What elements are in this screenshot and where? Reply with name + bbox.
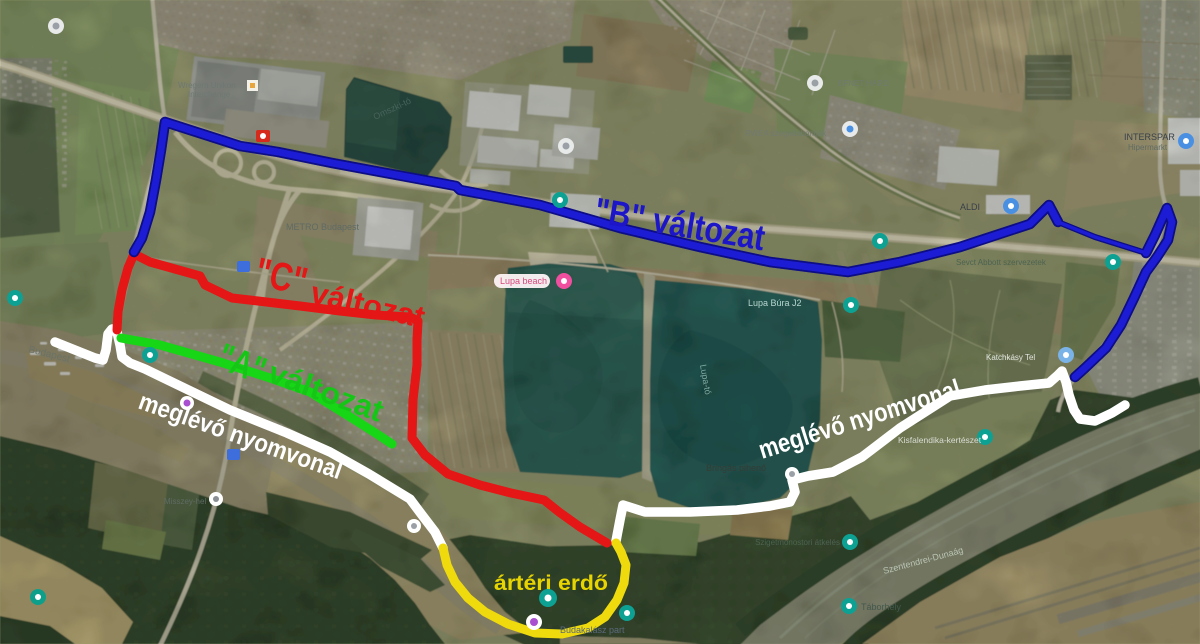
svg-text:Bringás pihenő: Bringás pihenő xyxy=(706,463,766,473)
svg-text:METRO Budapest: METRO Budapest xyxy=(286,222,360,232)
svg-text:ALDI: ALDI xyxy=(960,202,980,212)
svg-text:Lupa beach: Lupa beach xyxy=(500,276,547,286)
svg-text:Lupa Búra J2: Lupa Búra J2 xyxy=(748,298,802,308)
svg-text:Katchkásy Tel: Katchkásy Tel xyxy=(986,353,1035,362)
svg-text:Táborhely: Táborhely xyxy=(861,602,902,612)
svg-text:RWEA szegedsbontják: RWEA szegedsbontják xyxy=(745,129,827,138)
svg-text:Szigetmonostori átkelés: Szigetmonostori átkelés xyxy=(755,538,840,547)
svg-text:Wregern Unikon: Wregern Unikon xyxy=(178,81,236,90)
svg-text:Hipermarkt: Hipermarkt xyxy=(1128,143,1168,152)
svg-text:Kisfalendika-kertészet: Kisfalendika-kertészet xyxy=(898,435,982,445)
svg-text:Budakalász part: Budakalász part xyxy=(560,625,625,635)
svg-text:BFNET HARD: BFNET HARD xyxy=(838,79,889,88)
svg-text:Misszey-hel: Misszey-hel xyxy=(164,497,206,506)
svg-text:Interchange: Interchange xyxy=(188,90,231,99)
svg-text:Sevct Abbott szervezetek: Sevct Abbott szervezetek xyxy=(956,258,1047,267)
svg-text:INTERSPAR: INTERSPAR xyxy=(1124,132,1175,142)
